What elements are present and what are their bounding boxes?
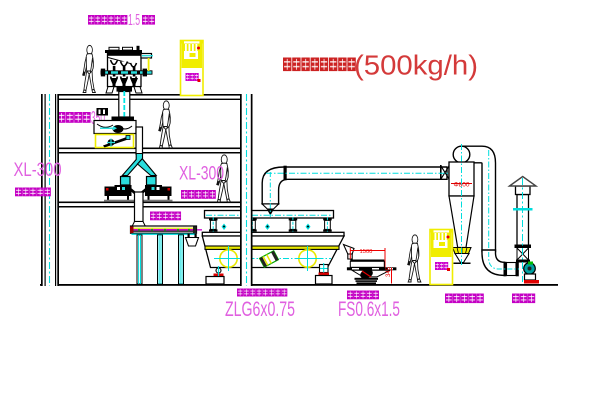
svg-text:XL-300: XL-300 xyxy=(179,164,224,185)
svg-text:XL-300: XL-300 xyxy=(14,160,62,181)
svg-text:1500: 1500 xyxy=(360,249,373,255)
svg-text:1.5: 1.5 xyxy=(128,12,140,29)
svg-text:345: 345 xyxy=(386,266,392,277)
svg-text:FS0.6x1.5: FS0.6x1.5 xyxy=(338,298,400,321)
svg-text:(500kg/h): (500kg/h) xyxy=(354,50,478,81)
svg-text:ZLG6x0.75: ZLG6x0.75 xyxy=(225,298,295,321)
